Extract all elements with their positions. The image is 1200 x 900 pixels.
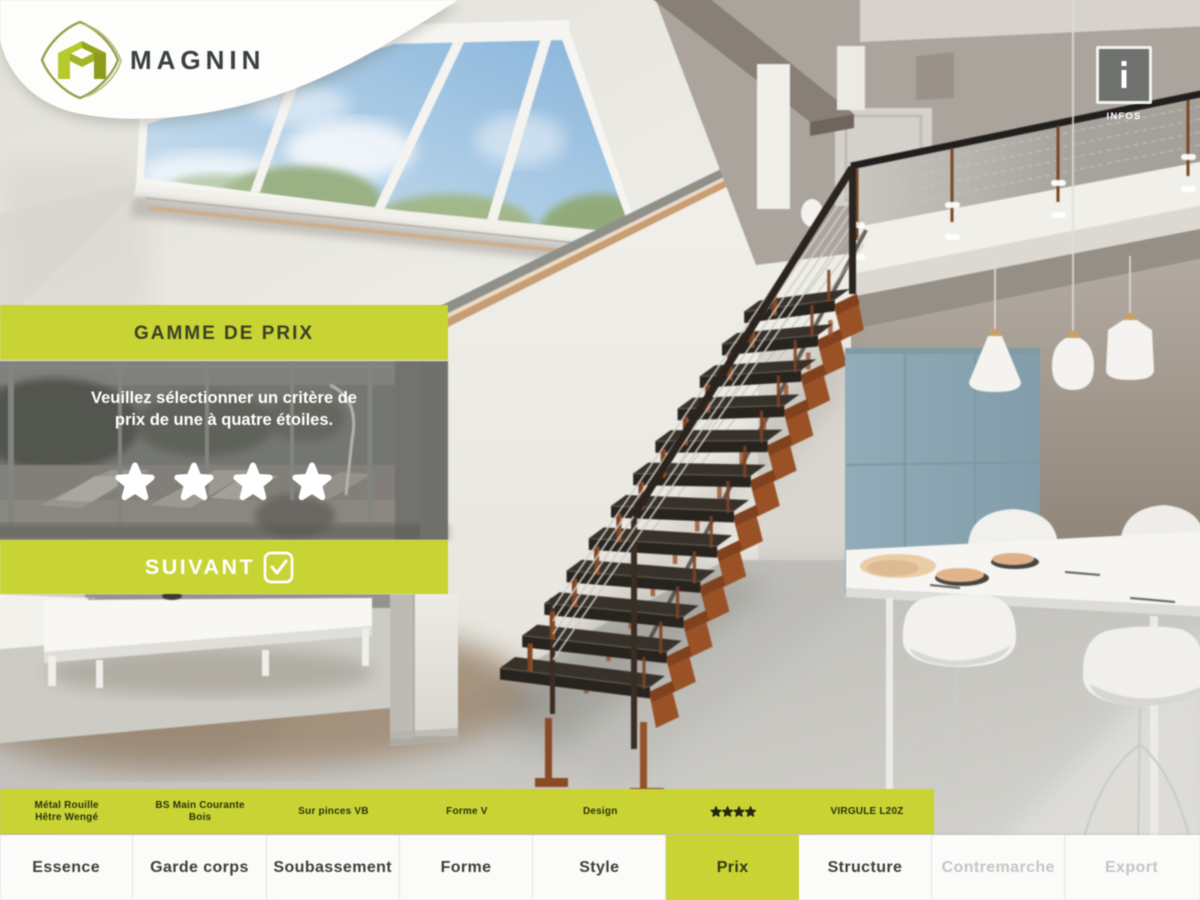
svg-text:MAGNIN: MAGNIN (130, 45, 265, 75)
